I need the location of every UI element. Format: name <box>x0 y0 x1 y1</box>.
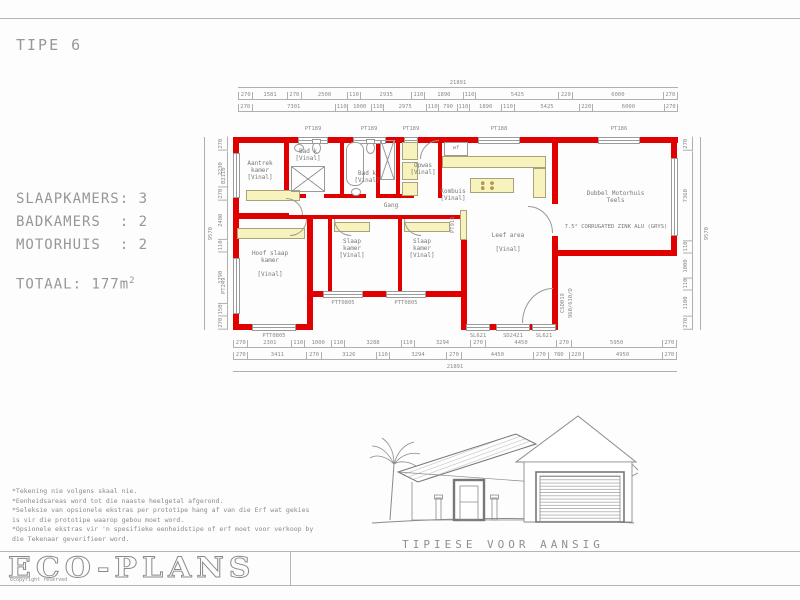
room-label-bad1: Bad k [Vinal] <box>288 148 328 162</box>
room-label-slaap2: Slaap kamer [Vinal] <box>402 238 442 259</box>
washer <box>402 182 418 196</box>
dim-bottom-row1: 2702301110100011032881103294270445027059… <box>233 340 677 348</box>
dim-top-row1: 2701581270250011029351101890110542522060… <box>238 92 678 100</box>
door-arc <box>404 219 421 236</box>
dim-bottom-total: 21891 <box>233 364 677 372</box>
room-label-aantrek: Aantrek kamer [Vinal] <box>234 160 286 181</box>
window-code: PT186 <box>593 126 645 132</box>
window <box>386 291 426 298</box>
door-arc <box>528 206 553 233</box>
total-area-label: TOTAAL: 177m2 <box>16 276 136 293</box>
wall-segment <box>340 137 344 198</box>
wall-segment <box>671 137 677 158</box>
door-code: SL621 <box>460 333 496 339</box>
window-code: PTT0805 <box>381 300 431 306</box>
wall-segment <box>233 213 289 219</box>
window-code: PT188 <box>473 126 525 132</box>
footer-divider <box>290 551 291 585</box>
room-label-opwas: Opwas [Vinal] <box>404 162 442 176</box>
sliding-door <box>532 324 556 331</box>
room-label-slaap1: Slaap kamer [Vinal] <box>332 238 372 259</box>
dim-top-total: 21891 <box>238 80 678 88</box>
window <box>598 137 640 144</box>
sliding-door <box>496 324 530 331</box>
wall-segment <box>307 219 313 330</box>
window-code: PTT0805 <box>318 300 368 306</box>
basin <box>351 188 361 196</box>
room-label-leef: Leef area [Vinal] <box>478 232 538 253</box>
door-arc <box>334 219 351 236</box>
roof-note: 7.5° CORRUGATED ZINK ALU (GRYS) <box>556 224 676 231</box>
toilet-tank <box>312 139 321 144</box>
toilet-tank <box>366 139 375 144</box>
window-code: PT189 <box>343 126 395 132</box>
spec-list: SLAAPKAMERS: 3 BADKAMERS : 2 MOTORHUIS :… <box>16 188 148 257</box>
room-label-bad2: Bad k [Vinal] <box>344 170 390 184</box>
dim-top-row2: 2707301110100011029751107901101890110542… <box>238 104 678 112</box>
window-code: PT916 <box>450 208 456 242</box>
window-code: PT189 <box>288 126 338 132</box>
wall-segment <box>552 250 677 256</box>
window-code: PTT0805 <box>248 333 300 339</box>
room-label-gang: Gang <box>378 202 404 209</box>
dim-right-total: 9570 <box>700 137 713 330</box>
washer <box>402 142 418 160</box>
fixture-label: wf <box>444 145 468 151</box>
copyright-text: ©copyright reserved <box>10 577 67 583</box>
window-code: PT189 <box>396 126 426 132</box>
total-label: TOTAAL: <box>16 277 82 293</box>
floor-plan: 21891 2701581270250011029351101890110542… <box>228 78 728 378</box>
wall-segment <box>396 137 400 198</box>
total-value: 177m <box>82 277 129 293</box>
elevation-caption: TIPIESE VOOR AANSIG <box>368 538 638 551</box>
room-label-kombuis: Kombuis [Vinal] <box>434 188 472 202</box>
dim-bottom-row2: 2703411270312611032942704450270780220495… <box>233 352 677 360</box>
window-code: B2110 <box>221 156 227 196</box>
door-code: CSD019 <box>560 282 566 324</box>
kitchen-counter <box>442 156 546 168</box>
window-code: PT249 <box>221 260 227 312</box>
dim-left-total: 9570 <box>204 137 217 330</box>
shower <box>291 166 325 192</box>
door-arc <box>522 288 553 323</box>
door-code: SL621 <box>526 333 562 339</box>
window <box>478 137 520 144</box>
wall-segment <box>671 236 677 256</box>
room-label-motorhuis: Dubbel Motorhuis Teels <box>558 190 673 204</box>
window <box>460 210 467 240</box>
notes-block: *Tekening nie volgens skaal nie. *Eenhei… <box>12 487 313 544</box>
dim-right-chain: 270736011010001101100270 <box>683 137 693 330</box>
footer-bottom-border <box>0 585 800 586</box>
sheet-top-border <box>0 18 800 19</box>
sheet-title: TIPE 6 <box>16 36 82 54</box>
kitchen-counter <box>533 168 546 198</box>
total-sup: 2 <box>129 276 135 286</box>
front-elevation-drawing <box>368 402 638 534</box>
wall-segment <box>288 215 467 219</box>
door-code: 960/610/D <box>568 280 574 326</box>
sliding-door <box>466 324 490 331</box>
room-label-hoof-slaap: Hoof slaap kamer [Vinal] <box>238 250 302 278</box>
stove-island <box>470 178 514 193</box>
door-arc <box>286 198 303 215</box>
window <box>323 291 363 298</box>
window <box>252 324 296 331</box>
